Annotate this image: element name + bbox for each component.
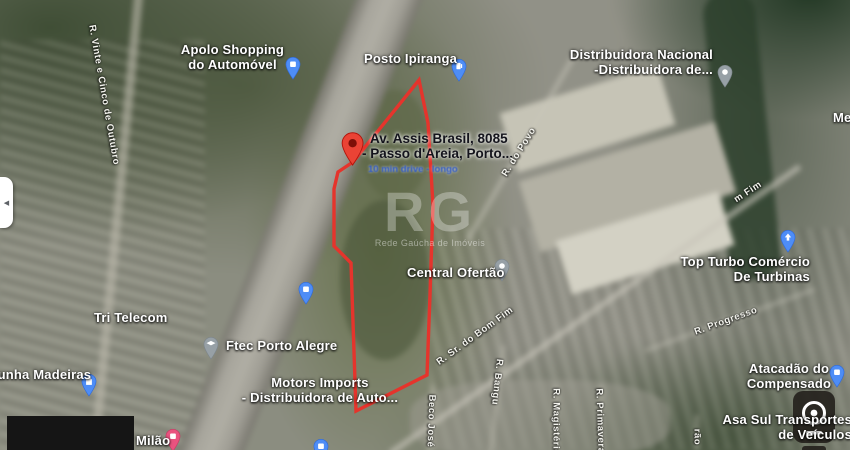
poi-label-tri-telecom[interactable]: Tri Telecom [94,310,167,325]
street-label-magisterio: R. Magistério [551,388,562,450]
pin-top-turbo[interactable] [781,230,795,252]
marker-address-line1[interactable]: Av. Assis Brasil, 8085 [370,131,508,146]
collapse-panel-button[interactable]: ◀ [0,177,13,228]
poi-label-milao[interactable]: Milão [136,433,170,448]
poi-label-cunha-madeiras[interactable]: Cunha Madeiras [0,367,91,382]
pin-motors-imports[interactable] [314,439,328,450]
poi-label-top-turbo[interactable]: Top Turbo Comércio De Turbinas [660,254,810,284]
redacted-label-box [7,416,134,450]
poi-label-me[interactable]: Me [833,110,850,125]
pin-ftec[interactable] [204,337,218,359]
poi-label-atacadao[interactable]: Atacadão do Compensado [714,361,850,391]
poi-label-posto-ipiranga[interactable]: Posto Ipiranga [364,51,457,66]
property-boundary-polygon[interactable] [334,80,433,411]
chevron-left-icon: ◀ [4,199,9,207]
poi-label-motors-imports[interactable]: Motors Imports - Distribuidora de Auto..… [240,375,400,405]
poi-label-central-ofertao[interactable]: Central Ofertão [407,265,505,280]
marker-eta: 10 min drive - longo [368,164,458,175]
pin-near-ftec[interactable] [299,282,313,304]
poi-label-apolo-shopping[interactable]: Apolo Shopping do Automóvel [150,42,315,72]
satellite-map[interactable]: RG Rede Gaúcha de Imóveis Av. Assis Bras… [0,0,850,450]
street-label-rao: rão [692,429,703,446]
poi-label-distribuidora-nacional[interactable]: Distribuidora Nacional -Distribuidora de… [560,47,713,77]
marker-address-line2[interactable]: - Passo d'Areia, Porto... [362,146,513,161]
pin-distribuidora-nacional[interactable] [718,65,732,87]
photosphere-icon-small[interactable] [802,446,826,450]
street-label-beco-jose: Beco José [425,394,438,447]
street-label-primavera: R. Primavera [593,388,606,450]
address-marker-pin[interactable] [342,133,363,165]
poi-label-ftec[interactable]: Ftec Porto Alegre [226,338,337,353]
poi-label-asa-sul[interactable]: Asa Sul Transportes de Veículos [718,412,850,442]
